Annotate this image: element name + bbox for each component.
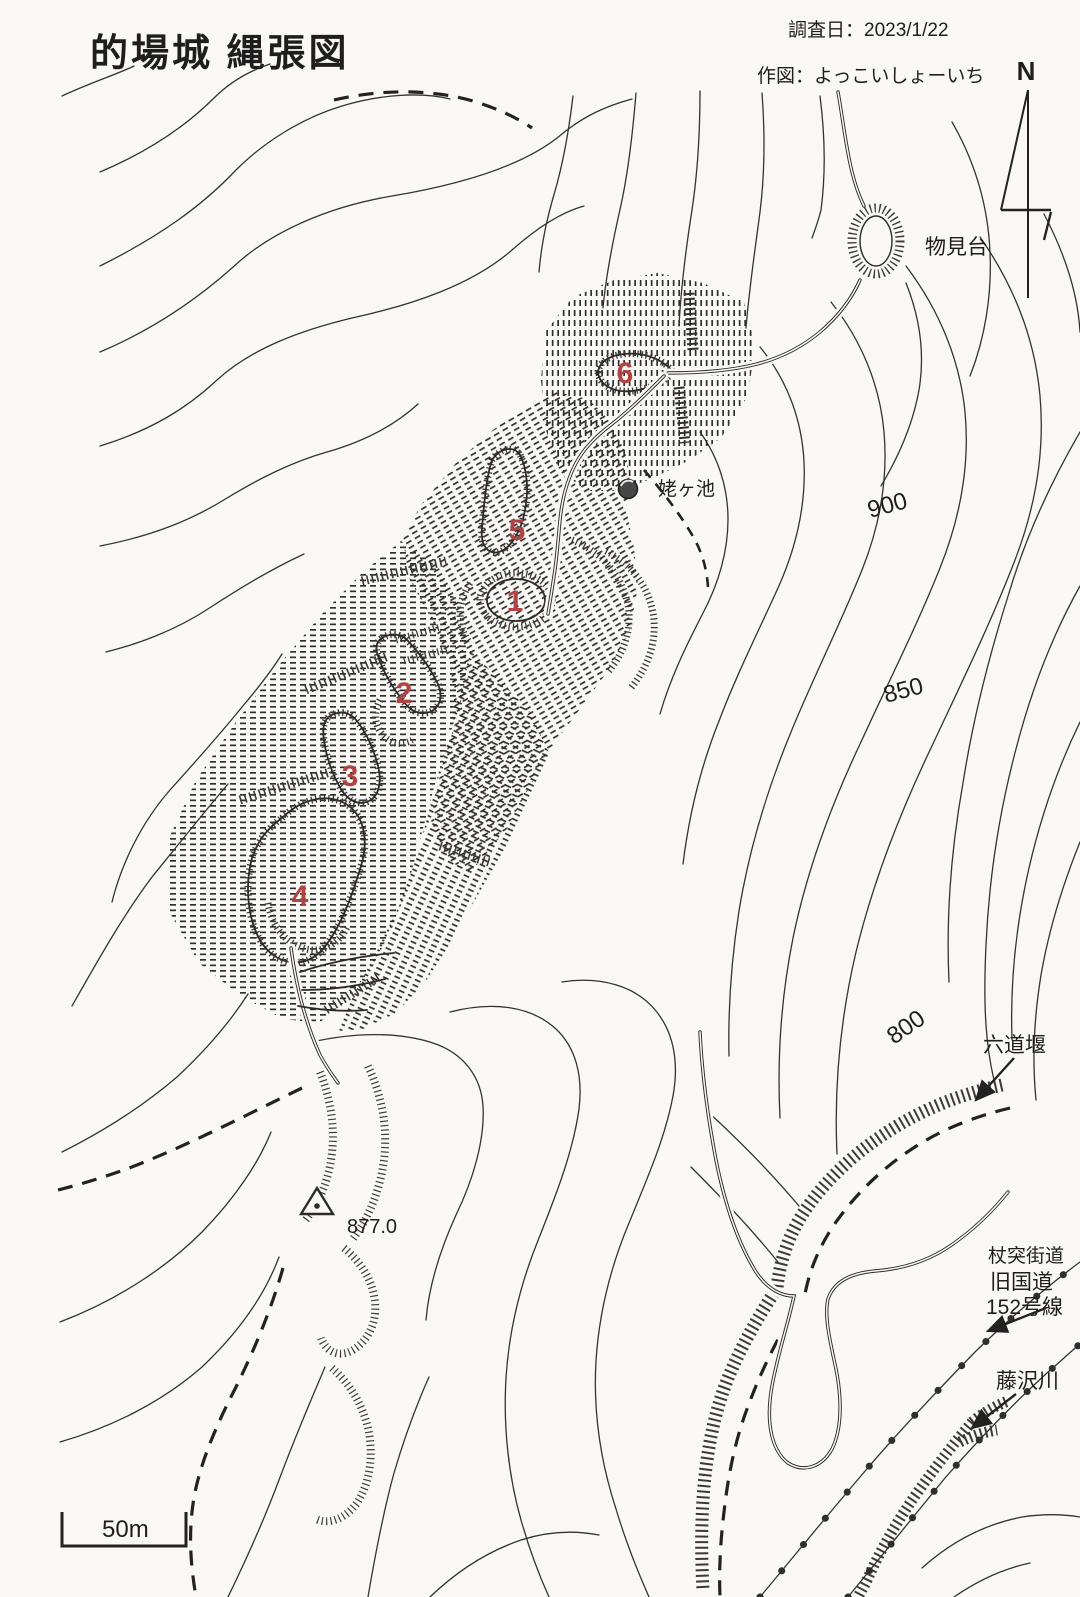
enclosure-2-number: 2 (396, 677, 413, 710)
enclosure-4-number: 4 (292, 880, 309, 913)
pond-marker (619, 480, 638, 499)
weir-label: 六道堰 (983, 1034, 1046, 1057)
road-name-label: 杖突街道 (988, 1245, 1064, 1267)
summit-elevation-label: 877.0 (347, 1216, 397, 1238)
map-page: 的場城 縄張図 調査日：2023/1/22 作図：よっこいしょーいち N 物見台… (0, 0, 1080, 1597)
enclosure-6-number: 6 (617, 357, 634, 390)
enclosure-5-number: 5 (509, 514, 526, 547)
road-number-label: 152号線 (986, 1296, 1063, 1319)
north-label: N (1017, 56, 1036, 86)
map-canvas: 的場城 縄張図 調査日：2023/1/22 作図：よっこいしょーいち N 物見台… (0, 0, 1080, 1597)
watchtower-label: 物見台 (925, 236, 988, 259)
road-type-label: 旧国道 (990, 1271, 1053, 1294)
enclosure-3-number: 3 (342, 760, 359, 793)
survey-date-label: 調査日：2023/1/22 (788, 19, 949, 41)
paper-background (0, 0, 1080, 1597)
author-label: 作図：よっこいしょーいち (757, 65, 984, 87)
river-label: 藤沢川 (996, 1370, 1059, 1393)
scale-bar-label: 50m (102, 1516, 149, 1543)
enclosure-1-number: 1 (507, 585, 524, 618)
page-title: 的場城 縄張図 (90, 33, 350, 75)
pond-label: 姥ヶ池 (658, 478, 715, 500)
